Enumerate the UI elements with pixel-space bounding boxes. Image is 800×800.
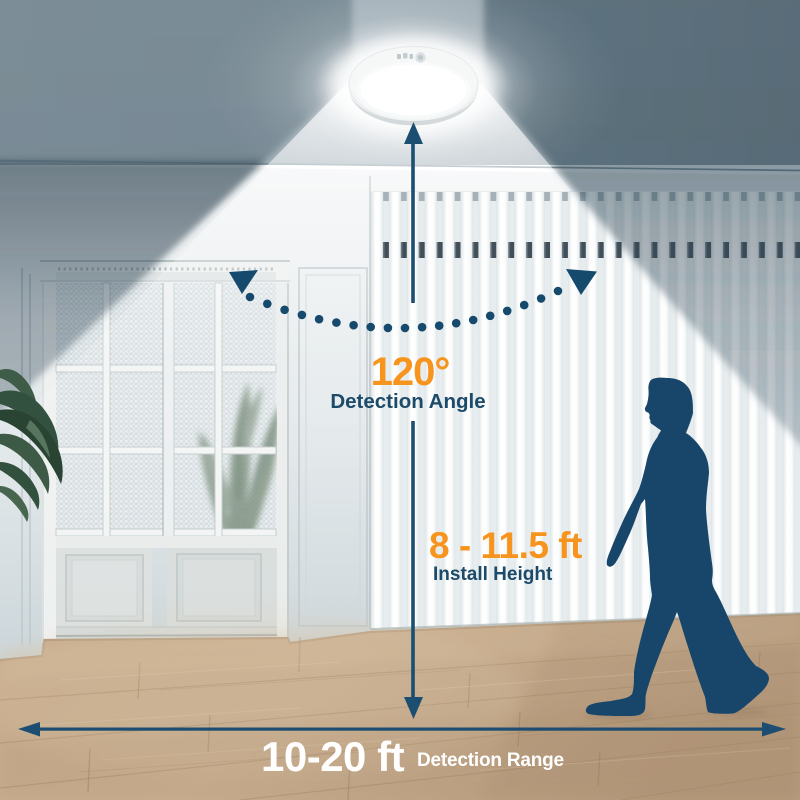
svg-text:Detection Range: Detection Range — [417, 750, 564, 771]
svg-text:Detection Angle: Detection Angle — [330, 390, 485, 413]
svg-text:Install Height: Install Height — [433, 564, 553, 585]
svg-text:120°: 120° — [371, 350, 450, 394]
svg-text:8 - 11.5 ft: 8 - 11.5 ft — [429, 525, 582, 566]
svg-text:10-20 ft: 10-20 ft — [261, 733, 405, 780]
